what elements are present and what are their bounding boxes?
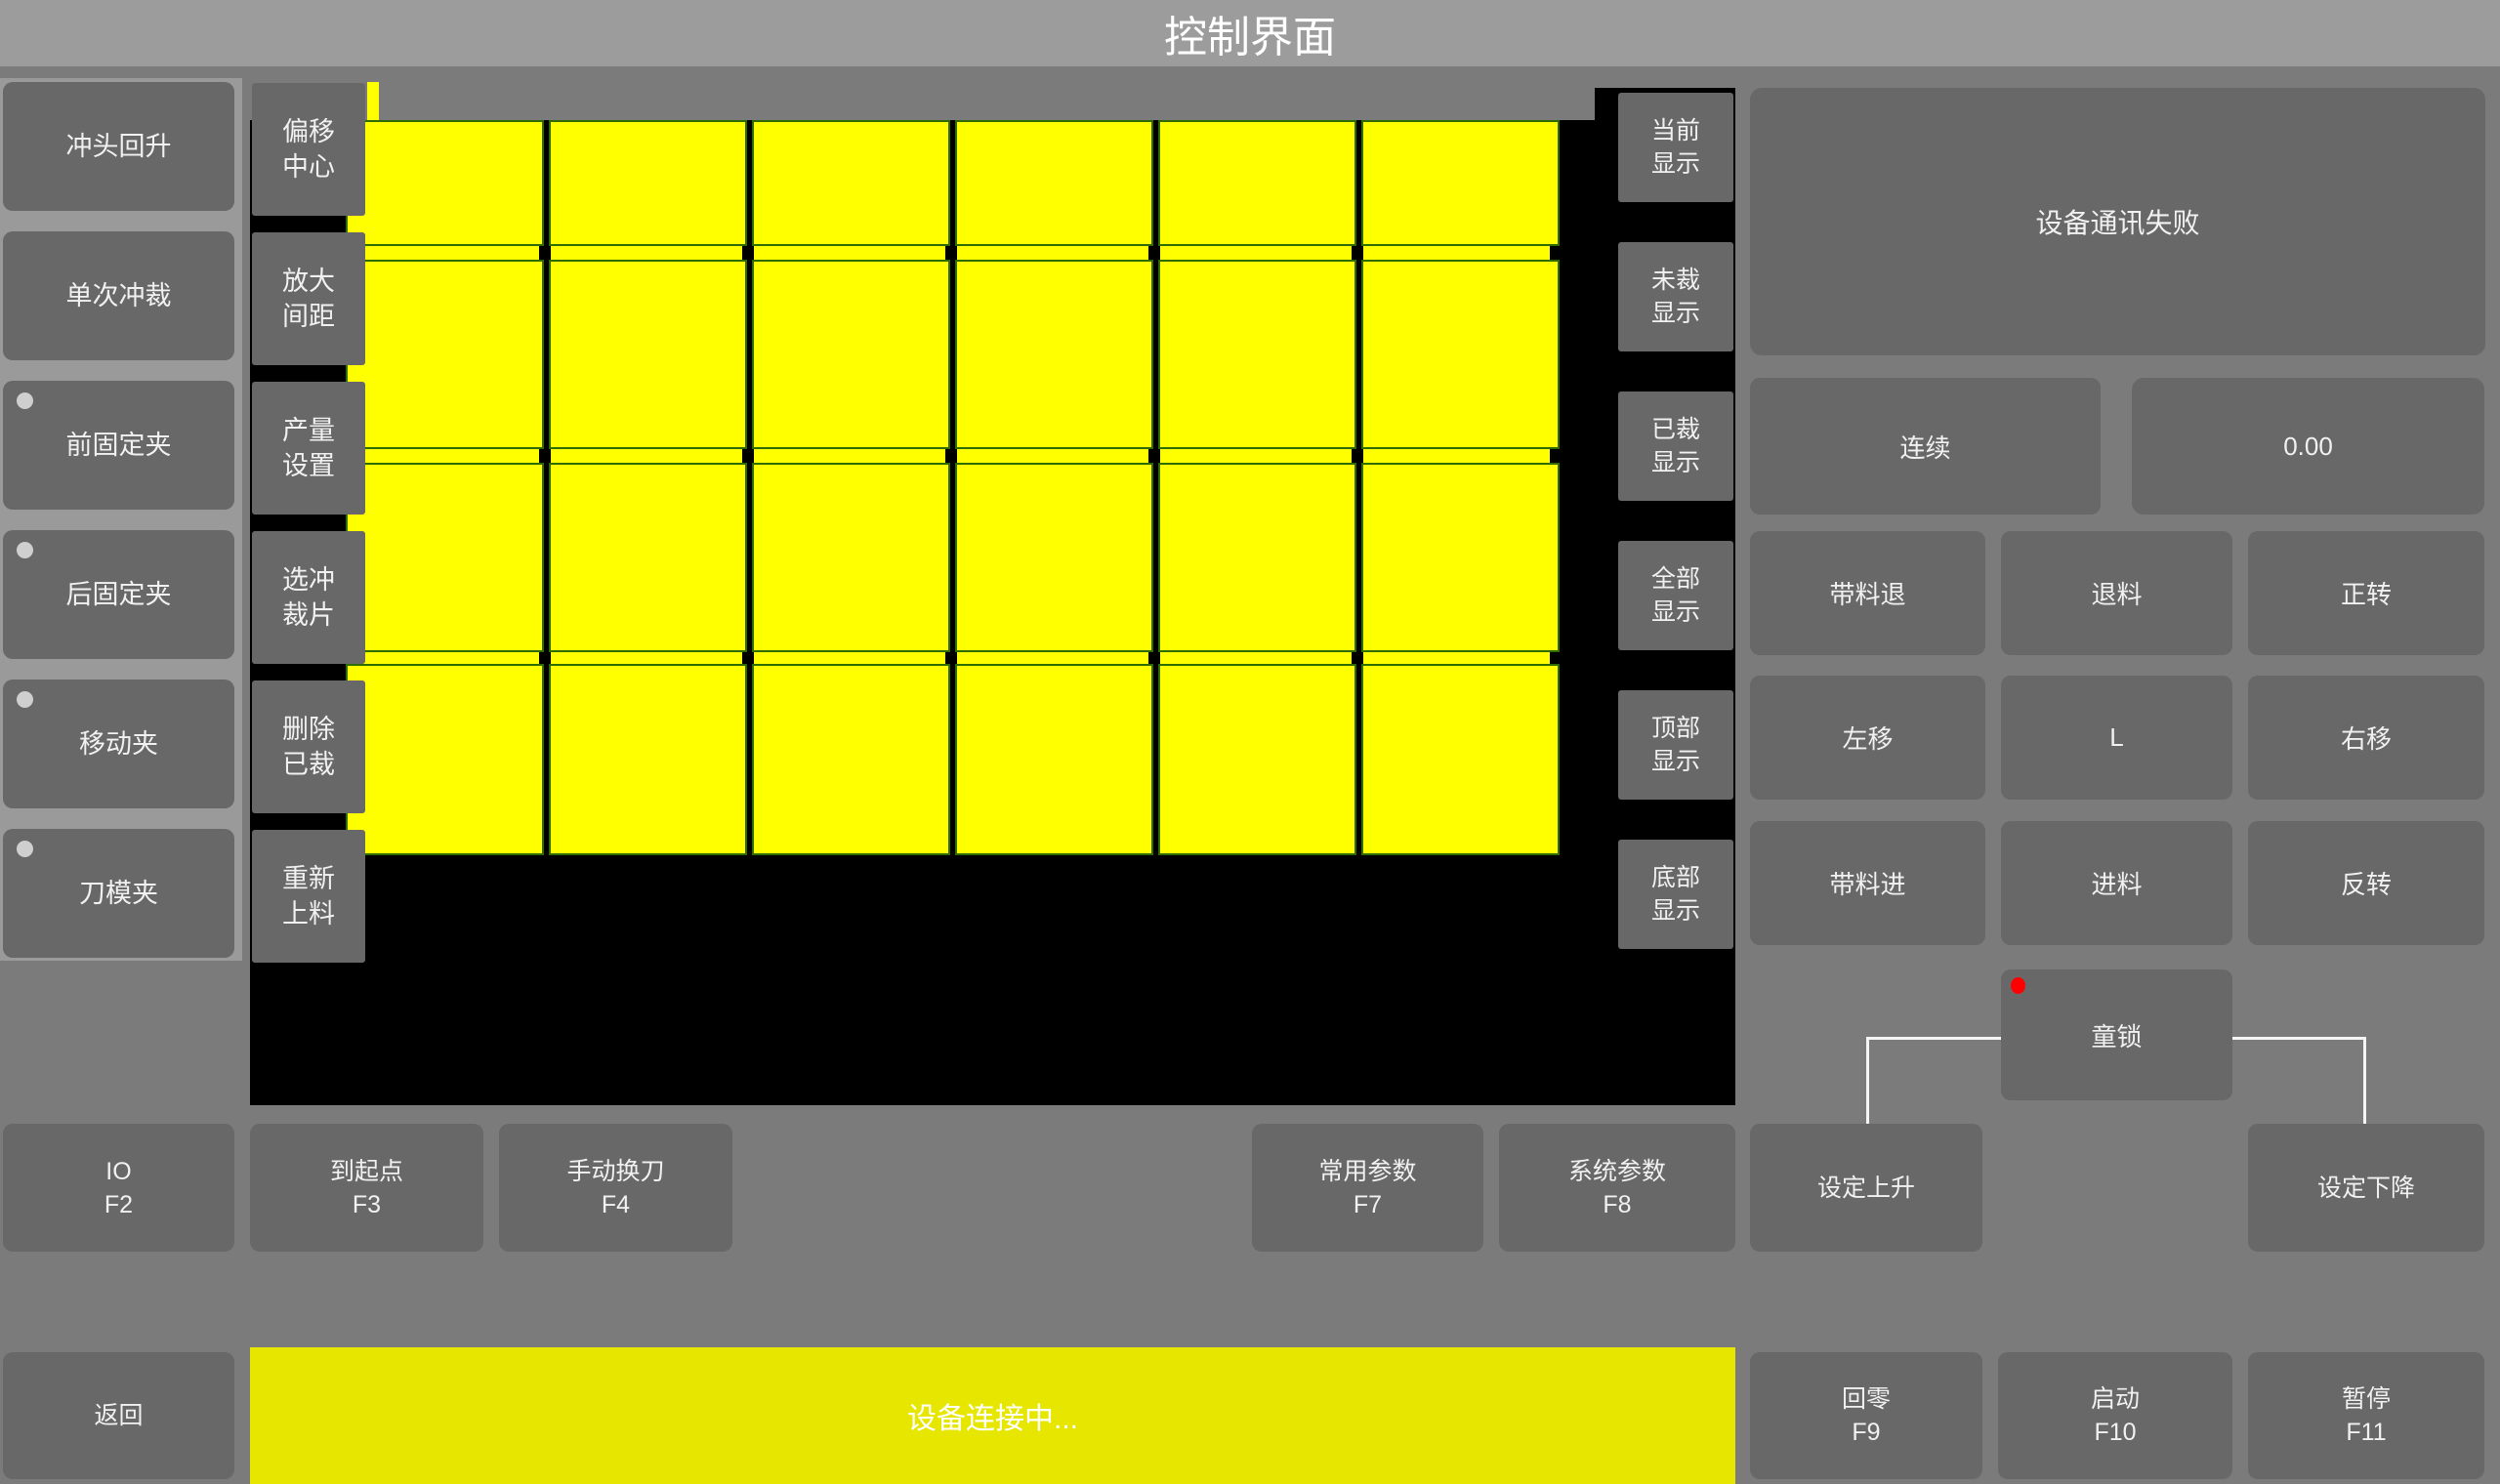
button-label: 当前 <box>1651 114 1700 147</box>
button-label: 顶部 <box>1651 712 1700 745</box>
cut-piece[interactable] <box>955 260 1153 449</box>
button-label: 删除 <box>282 712 335 747</box>
button-material-feed[interactable]: 进料 <box>2001 821 2232 945</box>
button-front-clamp[interactable]: 前固定夹 <box>3 381 234 510</box>
grid-notch <box>539 449 551 463</box>
cut-piece[interactable] <box>752 463 950 652</box>
cut-piece[interactable] <box>549 664 747 855</box>
button-forward-rotate[interactable]: 正转 <box>2248 531 2484 655</box>
cut-piece[interactable] <box>549 260 747 449</box>
button-feed-with-material[interactable]: 带料进 <box>1750 821 1985 945</box>
button-reverse-rotate[interactable]: 反转 <box>2248 821 2484 945</box>
grid-notch <box>742 652 754 664</box>
button-pause-f11[interactable]: 暂停F11 <box>2248 1352 2484 1479</box>
button-label: 反转 <box>2341 865 2392 901</box>
button-label: 中心 <box>282 149 335 185</box>
button-move-right[interactable]: 右移 <box>2248 676 2484 800</box>
grid-notch <box>1352 246 1363 260</box>
grid-notch <box>742 449 754 463</box>
state-indicator-dot <box>17 691 33 708</box>
alarm-dot-icon <box>2011 977 2025 994</box>
button-label: 底部 <box>1651 861 1700 894</box>
cut-piece[interactable] <box>1361 120 1560 246</box>
button-label: 冲头回升 <box>66 129 172 164</box>
button-label: 产量 <box>282 413 335 448</box>
button-show-bottom[interactable]: 底部显示 <box>1618 840 1733 949</box>
button-set-fall[interactable]: 设定下降 <box>2248 1124 2484 1252</box>
button-label: 刀模夹 <box>79 876 158 911</box>
cut-piece[interactable] <box>549 463 747 652</box>
grid-notch <box>1148 449 1160 463</box>
grid-notch <box>742 246 754 260</box>
button-manual-tool-change-f4[interactable]: 手动换刀F4 <box>499 1124 732 1252</box>
button-label: 显示 <box>1651 297 1700 330</box>
grid-notch <box>1148 246 1160 260</box>
lock-connector-line <box>2363 1037 2366 1125</box>
cut-piece[interactable] <box>752 120 950 246</box>
button-label: 重新 <box>282 861 335 896</box>
button-material-back[interactable]: 退料 <box>2001 531 2232 655</box>
button-label: 显示 <box>1651 894 1700 927</box>
value-display: 0.00 <box>2132 378 2484 515</box>
cut-piece[interactable] <box>346 120 544 246</box>
grid-notch <box>1550 246 1560 260</box>
button-moving-clamp[interactable]: 移动夹 <box>3 680 234 808</box>
button-label: 间距 <box>282 299 335 334</box>
page-title: 控制界面 <box>1164 2 1336 64</box>
button-show-current[interactable]: 当前显示 <box>1618 93 1733 202</box>
cut-piece[interactable] <box>752 260 950 449</box>
button-delete-cut[interactable]: 删除已裁 <box>252 680 365 813</box>
cut-piece[interactable] <box>1361 463 1560 652</box>
button-label: 显示 <box>1651 596 1700 629</box>
button-l[interactable]: L <box>2001 676 2232 800</box>
button-label: F10 <box>2094 1416 2136 1449</box>
button-label: F3 <box>353 1188 381 1221</box>
button-label: 单次冲裁 <box>66 278 172 313</box>
lock-connector-line <box>1866 1037 1869 1125</box>
grid-notch <box>539 246 551 260</box>
button-label: 全部 <box>1651 562 1700 596</box>
state-indicator-dot <box>17 542 33 558</box>
button-label: 手动换刀 <box>566 1155 664 1188</box>
button-die-clamp[interactable]: 刀模夹 <box>3 829 234 958</box>
grid-notch <box>539 652 551 664</box>
lock-connector-line <box>2232 1037 2366 1040</box>
lock-connector-line <box>1866 1037 2003 1040</box>
button-label: 裁片 <box>282 598 335 633</box>
button-select-piece[interactable]: 选冲裁片 <box>252 531 365 664</box>
grid-notch <box>1550 652 1560 664</box>
button-label: 已裁 <box>1651 413 1700 446</box>
button-reload-material[interactable]: 重新上料 <box>252 830 365 963</box>
button-set-rise[interactable]: 设定上升 <box>1750 1124 1982 1252</box>
button-show-top[interactable]: 顶部显示 <box>1618 690 1733 800</box>
mode-button[interactable]: 连续 <box>1750 378 2101 515</box>
state-indicator-dot <box>17 392 33 409</box>
button-label: 移动夹 <box>79 726 158 762</box>
cut-piece[interactable] <box>955 664 1153 855</box>
device-message: 设备通讯失败 <box>2035 202 2199 241</box>
button-label: F11 <box>2346 1416 2386 1449</box>
button-offset-center[interactable]: 偏移中心 <box>252 83 365 216</box>
button-label: 显示 <box>1651 745 1700 778</box>
cut-piece[interactable] <box>346 260 544 449</box>
button-label: 选冲 <box>282 562 335 598</box>
button-show-all[interactable]: 全部显示 <box>1618 541 1733 650</box>
button-label: 带料退 <box>1829 575 1905 611</box>
button-label: 显示 <box>1651 446 1700 479</box>
button-label: 未裁 <box>1651 264 1700 297</box>
button-system-params-f8[interactable]: 系统参数F8 <box>1499 1124 1735 1252</box>
button-label: F8 <box>1603 1188 1631 1221</box>
state-indicator-dot <box>17 841 33 857</box>
cut-piece[interactable] <box>549 120 747 246</box>
button-label: 退料 <box>2091 575 2142 611</box>
control-screen: 控制界面 冲头回升单次冲裁前固定夹后固定夹移动夹刀模夹 偏移中心放大间距产量设置… <box>0 0 2500 1484</box>
button-start-f10[interactable]: 启动F10 <box>1998 1352 2232 1479</box>
button-single-punch[interactable]: 单次冲裁 <box>3 231 234 360</box>
button-label: 后固定夹 <box>66 577 172 612</box>
button-label: 左移 <box>1842 720 1893 756</box>
button-label: L <box>2109 722 2123 753</box>
cut-piece[interactable] <box>752 664 950 855</box>
button-label: 系统参数 <box>1568 1155 1666 1188</box>
button-label: F4 <box>602 1188 630 1221</box>
cut-piece[interactable] <box>1361 260 1560 449</box>
button-io-f2[interactable]: IOF2 <box>3 1124 234 1252</box>
button-common-params-f7[interactable]: 常用参数F7 <box>1252 1124 1483 1252</box>
button-label: F2 <box>104 1188 133 1221</box>
cut-piece[interactable] <box>955 463 1153 652</box>
button-label: 已裁 <box>282 747 335 782</box>
cut-piece[interactable] <box>1158 463 1356 652</box>
title-bar: 控制界面 <box>0 0 2500 66</box>
button-label: 暂停 <box>2342 1382 2391 1416</box>
button-punch-return[interactable]: 冲头回升 <box>3 82 234 211</box>
grid-notch <box>1550 449 1560 463</box>
button-label: 设定下降 <box>2317 1172 2415 1205</box>
cut-piece[interactable] <box>346 463 544 652</box>
button-label: 上料 <box>282 896 335 931</box>
button-label: 进料 <box>2091 865 2142 901</box>
button-zoom-spacing[interactable]: 放大间距 <box>252 232 365 365</box>
button-move-left[interactable]: 左移 <box>1750 676 1985 800</box>
button-label: 启动 <box>2091 1382 2140 1416</box>
button-label: 带料进 <box>1829 865 1905 901</box>
button-feed-back-with-material[interactable]: 带料退 <box>1750 531 1985 655</box>
button-label: 正转 <box>2341 575 2392 611</box>
button-label: 设定上升 <box>1817 1172 1915 1205</box>
child-lock-button[interactable]: 童锁 <box>2001 969 2232 1100</box>
button-label: F7 <box>1354 1188 1382 1221</box>
grid-notch <box>1352 652 1363 664</box>
message-panel: 设备通讯失败 <box>1750 88 2485 355</box>
back-button[interactable]: 返回 <box>3 1352 234 1479</box>
button-label: F9 <box>1852 1416 1880 1449</box>
button-rear-clamp[interactable]: 后固定夹 <box>3 530 234 659</box>
button-label: 设置 <box>282 448 335 483</box>
button-label: 前固定夹 <box>66 428 172 463</box>
cut-piece[interactable] <box>955 120 1153 246</box>
button-origin-f3[interactable]: 到起点F3 <box>250 1124 483 1252</box>
grid-notch <box>1352 449 1363 463</box>
button-home-f9[interactable]: 回零F9 <box>1750 1352 1982 1479</box>
grid-notch <box>945 652 957 664</box>
cut-piece[interactable] <box>1158 260 1356 449</box>
button-show-uncut[interactable]: 未裁显示 <box>1618 242 1733 351</box>
piece-top-marker <box>367 82 379 120</box>
grid-notch <box>945 449 957 463</box>
button-label: 回零 <box>1842 1382 1891 1416</box>
button-label: 常用参数 <box>1318 1155 1416 1188</box>
button-label: 偏移 <box>282 114 335 149</box>
button-label: 到起点 <box>330 1155 403 1188</box>
button-output-settings[interactable]: 产量设置 <box>252 382 365 515</box>
cut-piece[interactable] <box>1158 664 1356 855</box>
status-text: 设备连接中... <box>907 1394 1078 1437</box>
button-label: IO <box>105 1155 131 1188</box>
status-strip: 设备连接中... <box>250 1347 1735 1484</box>
cut-piece[interactable] <box>1158 120 1356 246</box>
button-label: 放大 <box>282 264 335 299</box>
cut-piece[interactable] <box>346 664 544 855</box>
button-label: 右移 <box>2341 720 2392 756</box>
grid-notch <box>945 246 957 260</box>
cut-piece[interactable] <box>1361 664 1560 855</box>
button-label: 显示 <box>1651 147 1700 181</box>
button-show-cut[interactable]: 已裁显示 <box>1618 392 1733 501</box>
grid-notch <box>1148 652 1160 664</box>
